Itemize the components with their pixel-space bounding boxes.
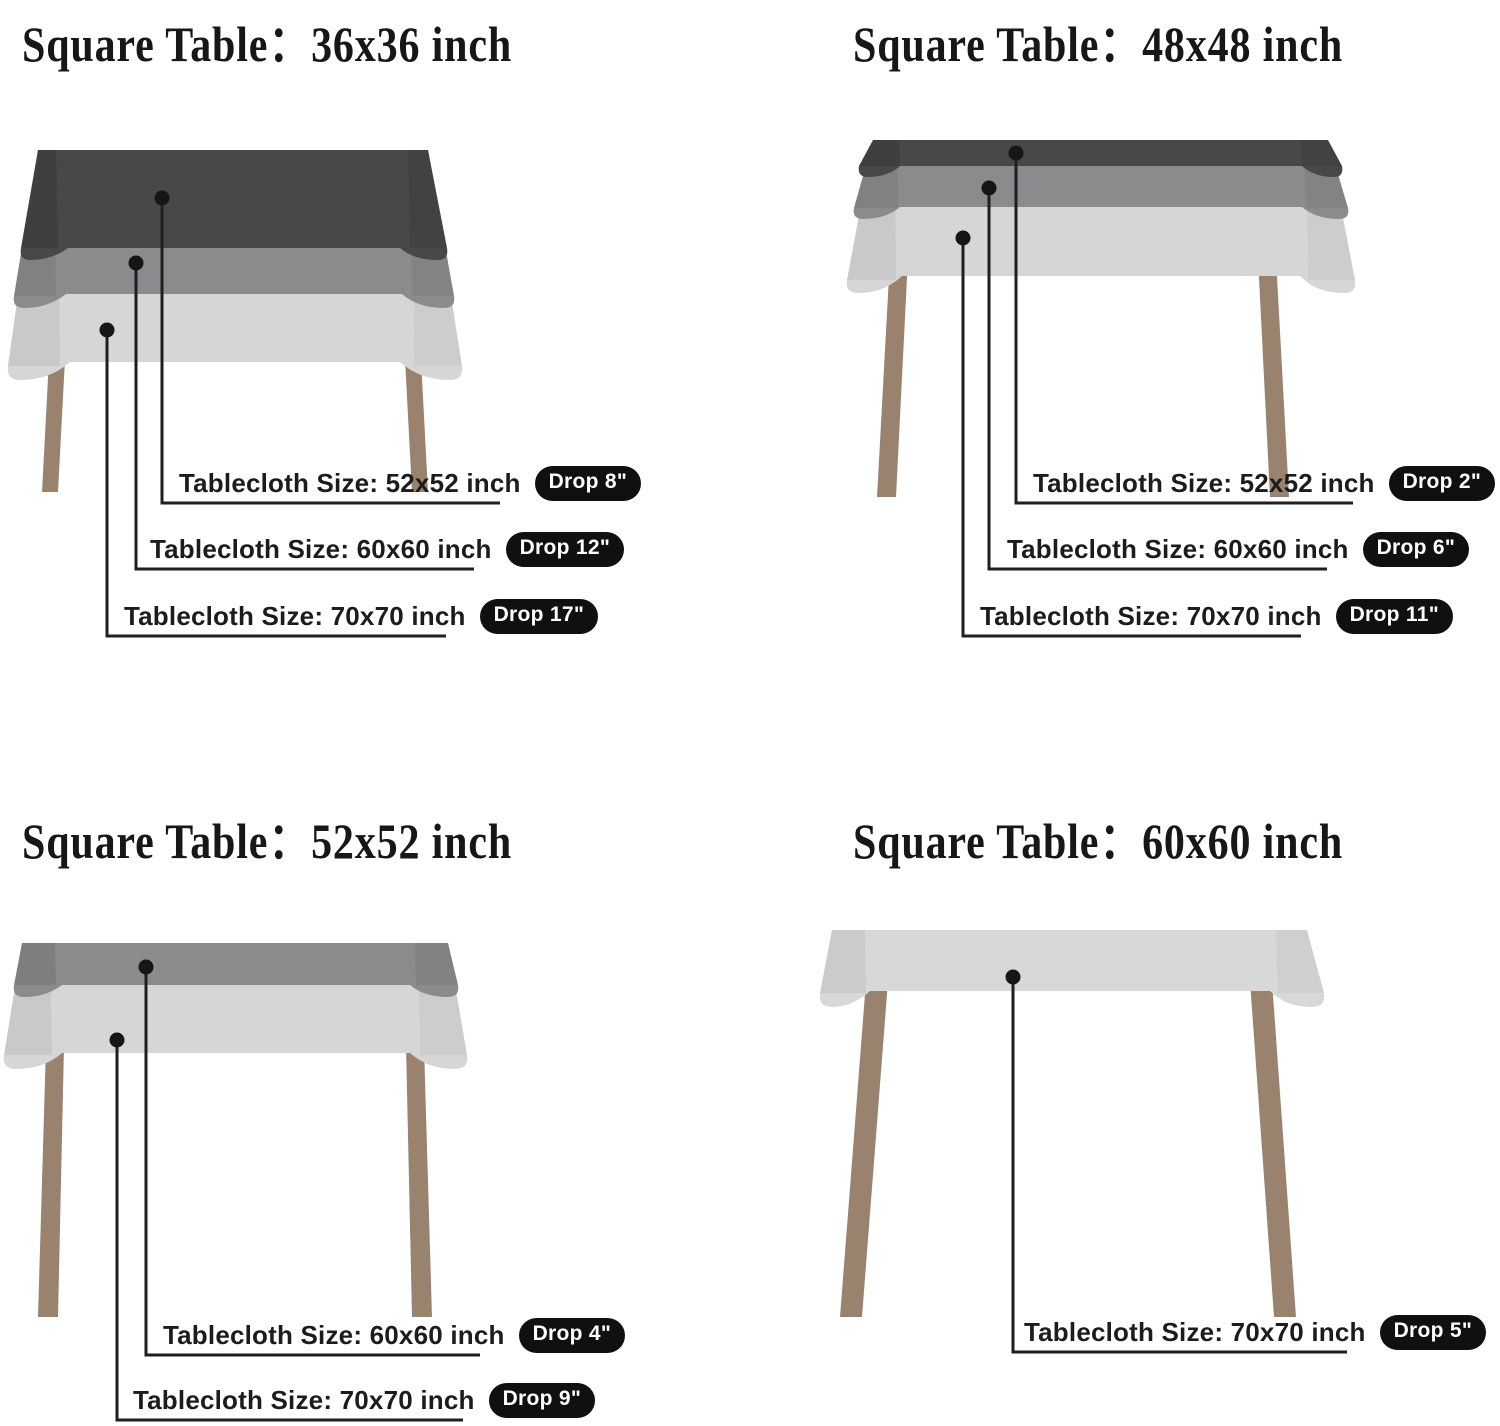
table-leg-left [38,1046,64,1317]
callout-line-70x70 [963,238,1301,636]
tablecloth-label: Tablecloth Size: 60x60 inch Drop 6" [1007,529,1469,569]
tablecloth-label: Tablecloth Size: 60x60 inch Drop 12" [150,529,624,569]
tablecloth-size-text: Tablecloth Size: 70x70 inch [133,1385,475,1416]
drop-badge: Drop 4" [519,1318,626,1353]
cloth-side-shade [1301,140,1342,166]
callout-dot-52x52 [155,191,170,206]
tablecloth-size-text: Tablecloth Size: 70x70 inch [980,601,1322,632]
table-leg-left [877,258,908,497]
table-leg-right [1258,258,1289,497]
drop-badge: Drop 11" [1336,599,1453,634]
drop-badge: Drop 12" [506,532,625,567]
section-48x48: Square Table：48x48 inch Tablecloth Size:… [750,0,1500,713]
tablecloth-size-text: Tablecloth Size: 52x52 inch [179,468,521,499]
cloth-side-shade [859,140,900,166]
callout-dot-70x70 [100,323,115,338]
cloth-side-shade [21,150,58,248]
drop-badge: Drop 5" [1380,1315,1487,1350]
callout-dot-60x60 [139,960,154,975]
tablecloth-label: Tablecloth Size: 60x60 inch Drop 4" [163,1315,625,1355]
tablecloth-label: Tablecloth Size: 52x52 inch Drop 2" [1033,463,1495,503]
drop-badge: Drop 6" [1363,532,1470,567]
tablecloth-label: Tablecloth Size: 52x52 inch Drop 8" [179,463,641,503]
cloth-side-shade [408,150,447,248]
table-leg-right [1250,981,1296,1317]
drop-badge: Drop 8" [535,466,642,501]
section-60x60: Square Table：60x60 inch Tablecloth Size:… [750,713,1500,1426]
callout-dot-70x70 [110,1033,125,1048]
tablecloth-size-text: Tablecloth Size: 60x60 inch [163,1320,505,1351]
callout-dot-70x70 [1006,970,1021,985]
tablecloth-size-text: Tablecloth Size: 52x52 inch [1033,468,1375,499]
tablecloth-size-text: Tablecloth Size: 60x60 inch [1007,534,1349,565]
table-leg-left [840,981,888,1317]
tablecloth-label: Tablecloth Size: 70x70 inch Drop 17" [124,596,598,636]
tablecloth-size-text: Tablecloth Size: 70x70 inch [1024,1317,1366,1348]
tablecloth-label: Tablecloth Size: 70x70 inch Drop 5" [1024,1312,1486,1352]
tablecloth-size-guide: Square Table：36x36 inch Tablecloth Size:… [0,0,1500,1426]
tablecloth-size-text: Tablecloth Size: 70x70 inch [124,601,466,632]
callout-dot-60x60 [982,181,997,196]
tablecloth-70x70-layer [820,930,1325,1007]
tablecloth-52x52-layer [21,150,448,260]
tablecloth-label: Tablecloth Size: 70x70 inch Drop 9" [133,1380,595,1420]
drop-badge: Drop 9" [489,1383,596,1418]
tablecloth-size-text: Tablecloth Size: 60x60 inch [150,534,492,565]
cloth-side-shade [820,930,866,993]
tablecloth-label: Tablecloth Size: 70x70 inch Drop 11" [980,596,1453,636]
cloth-side-shade [1276,930,1324,993]
cloth-side-shade [14,943,56,985]
drop-badge: Drop 17" [480,599,599,634]
section-52x52: Square Table：52x52 inch Tablecloth Size:… [0,713,750,1426]
callout-dot-52x52 [1009,146,1024,161]
callout-line-70x70 [1013,977,1347,1352]
section-36x36: Square Table：36x36 inch Tablecloth Size:… [0,0,750,713]
drop-badge: Drop 2" [1389,466,1496,501]
callout-dot-60x60 [129,256,144,271]
cloth-side-shade [415,943,458,985]
table-leg-right [406,1046,432,1317]
callout-dot-70x70 [956,231,971,246]
